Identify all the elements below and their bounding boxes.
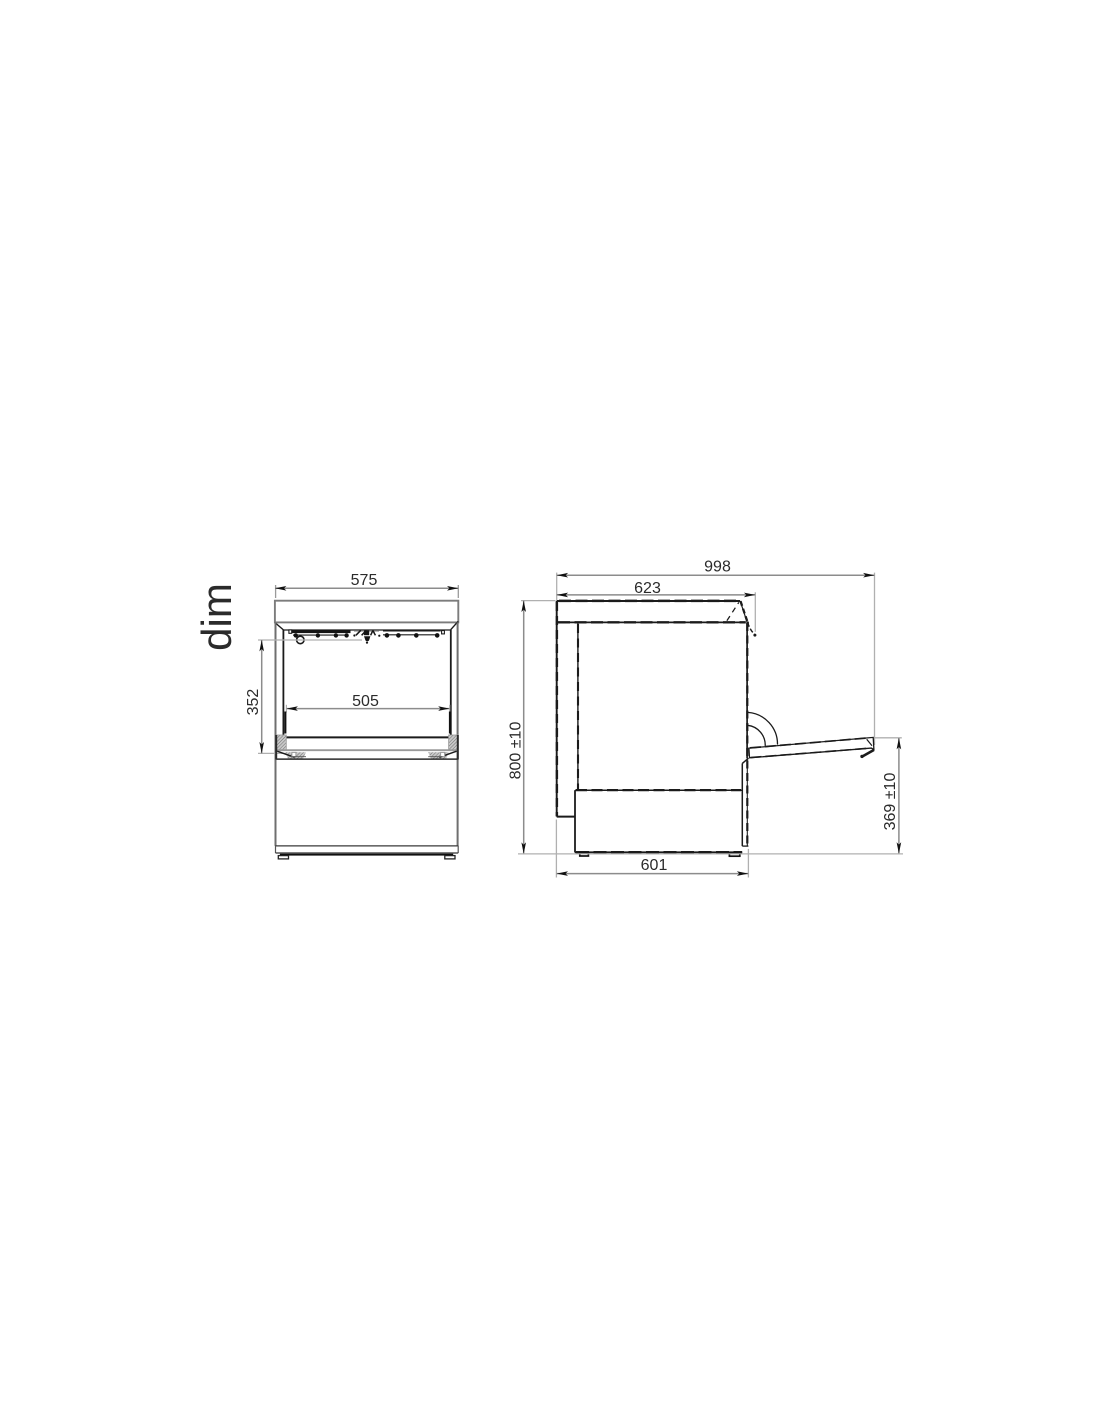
svg-text:575: 575 [351, 572, 378, 589]
svg-text:623: 623 [634, 580, 661, 597]
svg-text:dim: dim [193, 583, 240, 651]
svg-text:352: 352 [245, 689, 262, 716]
svg-text:998: 998 [704, 559, 731, 576]
svg-text:601: 601 [641, 857, 668, 874]
svg-text:505: 505 [352, 693, 379, 710]
svg-text:369 ±10: 369 ±10 [882, 773, 899, 831]
svg-text:800 ±10: 800 ±10 [507, 722, 524, 780]
